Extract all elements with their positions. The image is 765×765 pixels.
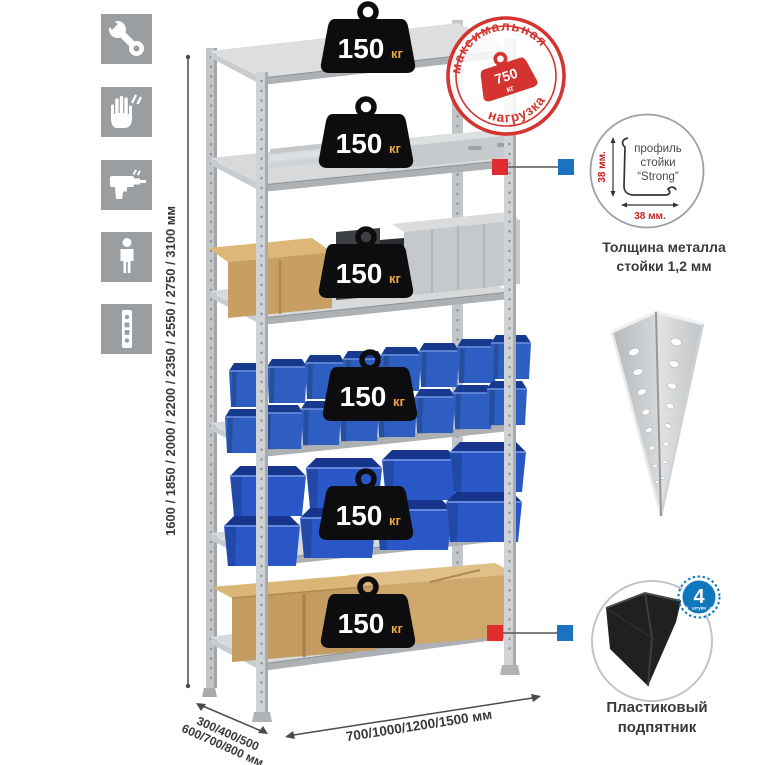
- callout-red-square-top: [492, 159, 508, 175]
- person-icon: [103, 233, 151, 281]
- profile-dim-horizontal: 38 мм.: [634, 211, 666, 222]
- back-left-post: [202, 48, 217, 697]
- wrench-icon: [103, 15, 151, 63]
- profile-caption-line1: Толщина металла: [575, 238, 753, 257]
- icon-tile-drill: [101, 160, 152, 210]
- icon-tile-rack-post: [101, 304, 152, 354]
- plastic-foot-detail: 4 штуки в комплекте: [592, 577, 720, 702]
- foot-caption-line2: подпятник: [567, 718, 747, 738]
- foot-caption-line1: Пластиковый: [567, 698, 747, 718]
- foot-caption: Пластиковый подпятник: [567, 698, 747, 739]
- icon-tile-wrench: [101, 14, 152, 64]
- profile-caption: Толщина металла стойки 1,2 мм: [575, 238, 753, 276]
- icon-tile-gloves: [101, 87, 152, 137]
- callout-blue-square-bottom: [557, 625, 573, 641]
- weight-badge-2: [319, 99, 413, 168]
- count-badge-sub: штуки: [692, 606, 706, 611]
- rack-post-icon: [103, 305, 151, 353]
- profile-dim-vertical: 38 мм.: [597, 151, 608, 183]
- corner-post-image: [612, 312, 703, 516]
- drill-icon: [103, 161, 151, 209]
- gloves-icon: [103, 88, 151, 136]
- height-dimension-label: 1600 / 1850 / 2000 / 2200 / 2350 / 2550 …: [163, 101, 179, 641]
- weight-badge-1: [321, 4, 415, 73]
- callout-red-square-bottom: [487, 625, 503, 641]
- count-badge: 4 штуки в комплекте: [679, 577, 720, 619]
- profile-caption-line2: стойки 1,2 мм: [575, 257, 753, 276]
- callout-top: [492, 159, 574, 175]
- icon-tile-person: [101, 232, 152, 282]
- height-dimension-line: [186, 55, 190, 688]
- profile-label-2: стойки: [640, 157, 675, 169]
- infographic-canvas: 150 кг: [0, 0, 765, 765]
- post-profile-detail: 38 мм. 38 мм. профиль стойки “Strong”: [591, 115, 704, 228]
- profile-label-1: профиль: [634, 143, 682, 155]
- profile-label-3: “Strong”: [637, 171, 679, 183]
- callout-blue-square-top: [558, 159, 574, 175]
- callout-bottom: [487, 625, 573, 641]
